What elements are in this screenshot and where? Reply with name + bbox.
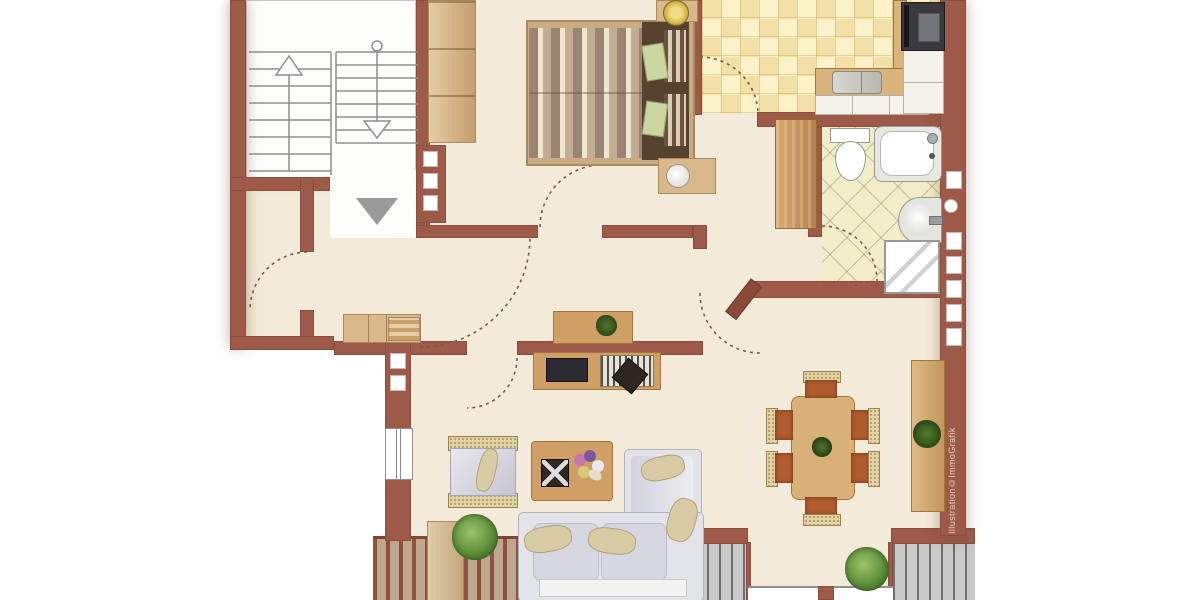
bedroom-bottom-wall-r <box>602 225 693 238</box>
glass-block <box>946 280 962 298</box>
shower <box>884 240 940 294</box>
tall-cabinet <box>775 119 817 229</box>
chair-backrest <box>803 514 841 526</box>
flower-decor <box>572 450 606 484</box>
glass-block <box>946 171 962 189</box>
dining-chair-top <box>803 371 839 398</box>
stove-door <box>918 13 940 42</box>
glass-block <box>946 232 962 250</box>
sink-divider <box>861 72 862 93</box>
kitchen-cabinet-right <box>903 50 944 114</box>
outer-wall-left <box>230 0 246 347</box>
glass-block <box>946 328 962 346</box>
watermark-text: Illustration©ImmoGrafik <box>947 430 961 534</box>
desk-plant <box>596 315 617 336</box>
dining-chair-bottom <box>803 497 839 524</box>
armchair <box>448 436 516 506</box>
coffee-table <box>531 441 613 501</box>
wall-porthole <box>944 199 958 213</box>
sideboard-baskets <box>388 317 420 341</box>
glass-block <box>390 353 406 369</box>
bathtub-drain <box>929 153 935 159</box>
table-centerpiece <box>812 437 832 457</box>
bedroom-bottom-wall-l <box>416 225 538 238</box>
bed-duvet-seam <box>529 92 642 94</box>
striped-pillow <box>664 94 686 146</box>
chair-seat <box>851 453 869 483</box>
green-cushion <box>642 101 669 138</box>
glass-block <box>946 304 962 322</box>
chessboard <box>541 459 569 487</box>
hall-sideboard <box>343 314 421 343</box>
entrance-direction-arrow <box>356 198 398 225</box>
tv-screen <box>546 358 588 382</box>
niche-window-mullion <box>818 586 834 600</box>
chair-seat <box>775 410 793 440</box>
bed-headboard-area <box>642 22 689 160</box>
sideboard-plant <box>913 420 941 448</box>
storage-top-wall <box>230 177 330 191</box>
gray-deck-right <box>893 542 975 600</box>
dining-chair-left-1 <box>766 408 793 442</box>
glass-block <box>423 195 438 211</box>
sofa-base <box>539 579 687 597</box>
nightstand-lamp <box>663 0 689 26</box>
kitchen-sink <box>832 71 882 94</box>
washbasin-faucet <box>929 216 943 225</box>
outside-area <box>230 350 385 600</box>
glass-block <box>946 256 962 274</box>
bedroom-corner-stub <box>693 225 707 249</box>
chair-backrest <box>868 408 880 444</box>
niche-plant <box>845 547 889 591</box>
stove <box>901 2 945 51</box>
dining-chair-left-2 <box>766 451 793 485</box>
dining-chair-right-1 <box>851 408 878 442</box>
stairwell-floor <box>246 0 416 178</box>
chair-seat <box>851 410 869 440</box>
glass-block <box>423 173 438 189</box>
storage-bottom-wall <box>230 336 334 350</box>
dining-chair-right-2 <box>851 451 878 485</box>
double-bed <box>526 20 695 166</box>
glass-block <box>390 375 406 391</box>
bathtub <box>874 126 942 182</box>
floor-plan-canvas: Illustration©ImmoGrafik <box>0 0 1200 600</box>
glass-block <box>423 151 438 167</box>
chair-seat <box>805 380 837 398</box>
decor-bowl <box>666 164 690 188</box>
wardrobe <box>428 0 476 143</box>
bathtub-faucet <box>927 133 938 144</box>
chair-seat <box>805 497 837 515</box>
living-left-window <box>385 428 413 480</box>
storage-right-wall-a <box>300 177 314 252</box>
washbasin <box>898 197 942 244</box>
chair-seat <box>775 453 793 483</box>
living-room-plant <box>452 514 498 560</box>
desk <box>553 311 633 344</box>
bathtub-inner <box>880 131 934 176</box>
stove-knobs <box>904 5 909 47</box>
chair-backrest <box>868 451 880 487</box>
